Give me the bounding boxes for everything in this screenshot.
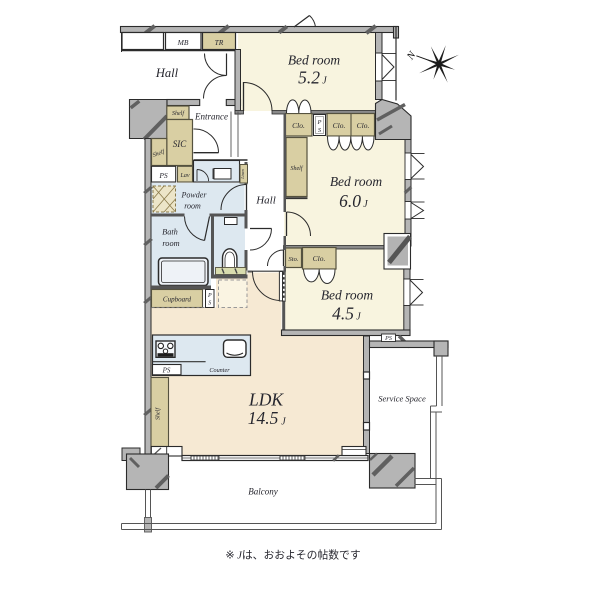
svg-text:Hall: Hall	[255, 195, 276, 207]
svg-text:※ Jは、おおよその帖数です: ※ Jは、おおよその帖数です	[225, 549, 361, 562]
svg-text:PS: PS	[162, 367, 171, 375]
svg-text:Cupboard: Cupboard	[163, 296, 192, 304]
svg-text:Balcony: Balcony	[248, 487, 278, 497]
svg-text:Clo.: Clo.	[333, 121, 346, 130]
svg-text:PS: PS	[158, 171, 168, 180]
svg-text:J: J	[363, 199, 368, 210]
svg-text:J: J	[281, 417, 286, 428]
svg-text:Clo.: Clo.	[292, 121, 305, 130]
svg-text:Service Space: Service Space	[378, 394, 426, 404]
svg-text:J: J	[356, 312, 361, 323]
svg-text:Clo.: Clo.	[313, 254, 326, 263]
svg-text:5.2: 5.2	[298, 68, 320, 88]
svg-text:Hall: Hall	[155, 66, 179, 80]
svg-text:P: P	[317, 119, 322, 126]
svg-text:Lav: Lav	[180, 173, 190, 179]
svg-text:Powder: Powder	[181, 191, 208, 200]
svg-text:Shelf: Shelf	[172, 110, 185, 117]
svg-text:Bath: Bath	[162, 228, 178, 237]
svg-text:MB: MB	[177, 38, 189, 47]
svg-text:Bed room: Bed room	[321, 288, 374, 303]
svg-text:room: room	[184, 202, 201, 211]
svg-text:room: room	[162, 239, 179, 248]
svg-text:Bed room: Bed room	[330, 174, 383, 189]
svg-text:Shelf: Shelf	[155, 407, 162, 420]
svg-text:SIC: SIC	[173, 139, 187, 149]
svg-text:Shelf: Shelf	[291, 165, 304, 172]
svg-text:P: P	[207, 293, 212, 299]
svg-text:6.0: 6.0	[339, 191, 361, 211]
svg-text:Linen: Linen	[240, 169, 245, 180]
svg-text:S: S	[208, 301, 211, 307]
svg-text:4.5: 4.5	[332, 304, 354, 324]
svg-text:Entrance: Entrance	[194, 112, 228, 122]
svg-text:Sto.: Sto.	[289, 256, 299, 263]
svg-text:14.5: 14.5	[248, 408, 279, 428]
svg-text:LDK: LDK	[248, 390, 284, 410]
svg-text:TR: TR	[215, 38, 224, 47]
svg-text:J: J	[322, 76, 327, 87]
svg-text:PS: PS	[384, 336, 392, 342]
svg-text:Counter: Counter	[209, 367, 230, 374]
svg-text:Bed room: Bed room	[288, 53, 341, 68]
svg-text:Clo.: Clo.	[357, 121, 370, 130]
